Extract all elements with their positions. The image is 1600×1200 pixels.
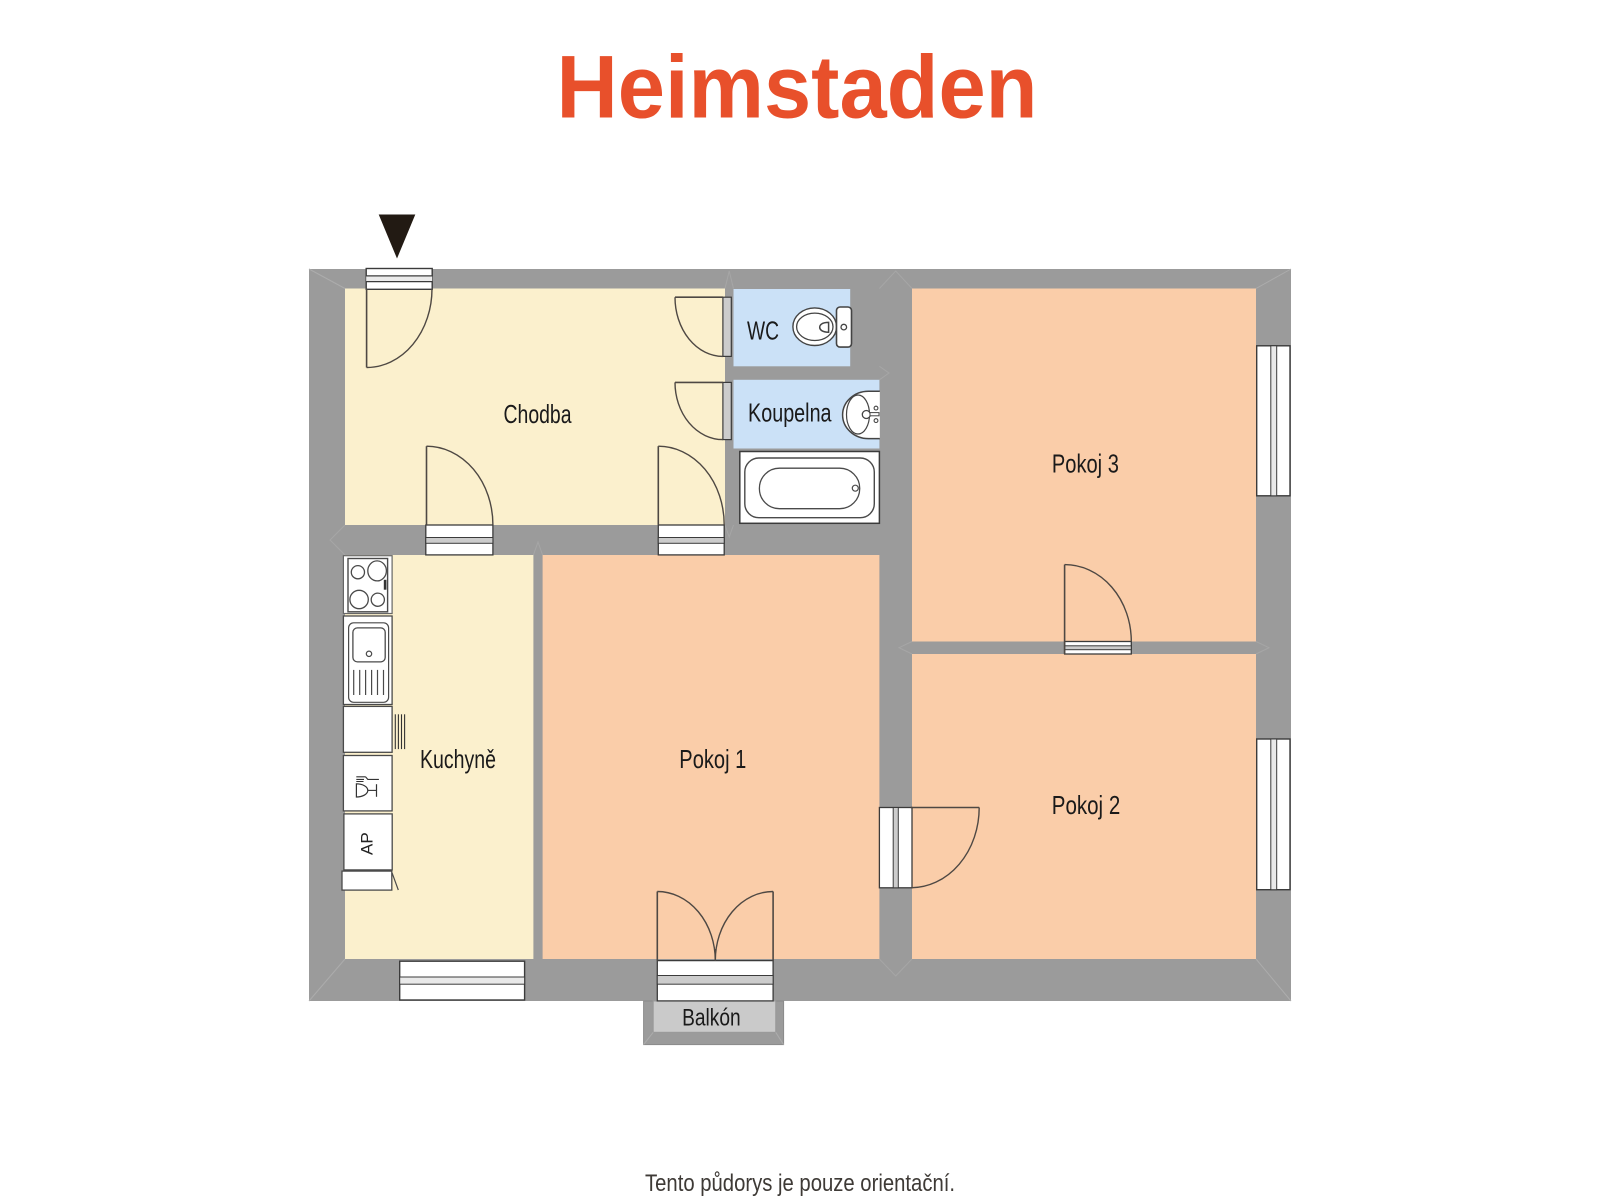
svg-text:Pokoj 3: Pokoj 3 (1052, 449, 1119, 479)
svg-text:WC: WC (747, 316, 779, 346)
svg-text:Kuchyně: Kuchyně (420, 744, 496, 774)
svg-text:AP: AP (358, 832, 377, 855)
svg-text:Chodba: Chodba (504, 399, 572, 429)
svg-text:Pokoj 2: Pokoj 2 (1052, 790, 1121, 820)
svg-text:Pokoj 1: Pokoj 1 (679, 744, 746, 774)
svg-text:Balkón: Balkón (682, 1005, 741, 1032)
svg-text:Koupelna: Koupelna (748, 397, 832, 427)
svg-text:Tento půdorys je pouze orienta: Tento půdorys je pouze orientační. (645, 1170, 955, 1197)
svg-text:Heimstaden: Heimstaden (557, 37, 1038, 137)
